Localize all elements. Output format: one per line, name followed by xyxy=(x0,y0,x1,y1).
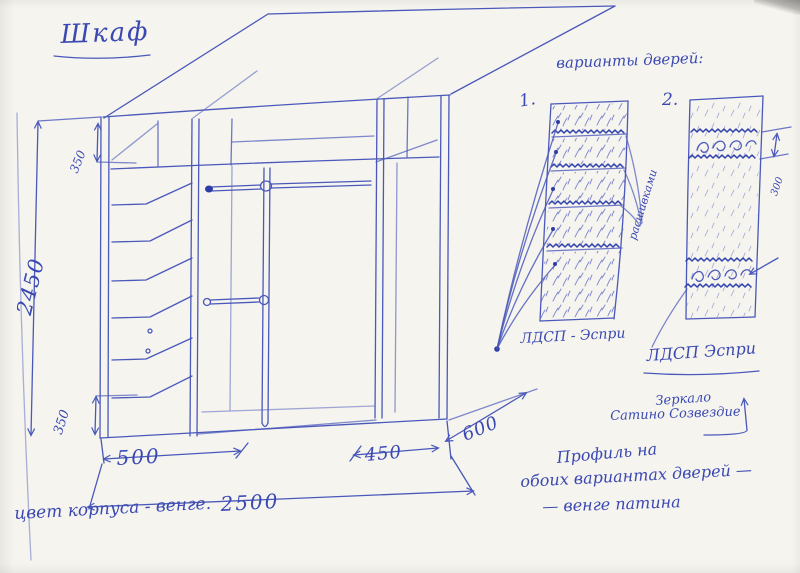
drawer-knob xyxy=(146,349,150,353)
shelf-lines xyxy=(112,183,192,398)
profile-note-line3: — венге патина xyxy=(542,494,681,515)
door-variant-2-drawing xyxy=(644,96,791,435)
door-variant-1-drawing xyxy=(494,101,642,352)
sketch-sheet: Шкаф 2450 350 350 500 450 600 2500 цвет … xyxy=(0,0,800,573)
dim-right-width-label: 450 xyxy=(364,444,403,465)
band-dimension-300 xyxy=(760,127,791,159)
page-title: Шкаф xyxy=(60,19,150,48)
drawer-knob xyxy=(148,329,152,333)
wardrobe-interior xyxy=(111,97,439,436)
ldsp2-underline xyxy=(644,371,759,375)
variant1-number: 1. xyxy=(518,91,537,111)
photo-corner-shadow xyxy=(754,0,800,15)
wardrobe-outline xyxy=(100,6,615,438)
dim-total-width-label: 2500 xyxy=(220,491,280,514)
dim-left-width-label: 500 xyxy=(116,446,161,468)
hanging-rod-assembly xyxy=(204,168,372,427)
sketch-linework xyxy=(0,0,800,573)
variant2-number: 2. xyxy=(662,92,678,109)
title-underline xyxy=(54,55,150,58)
